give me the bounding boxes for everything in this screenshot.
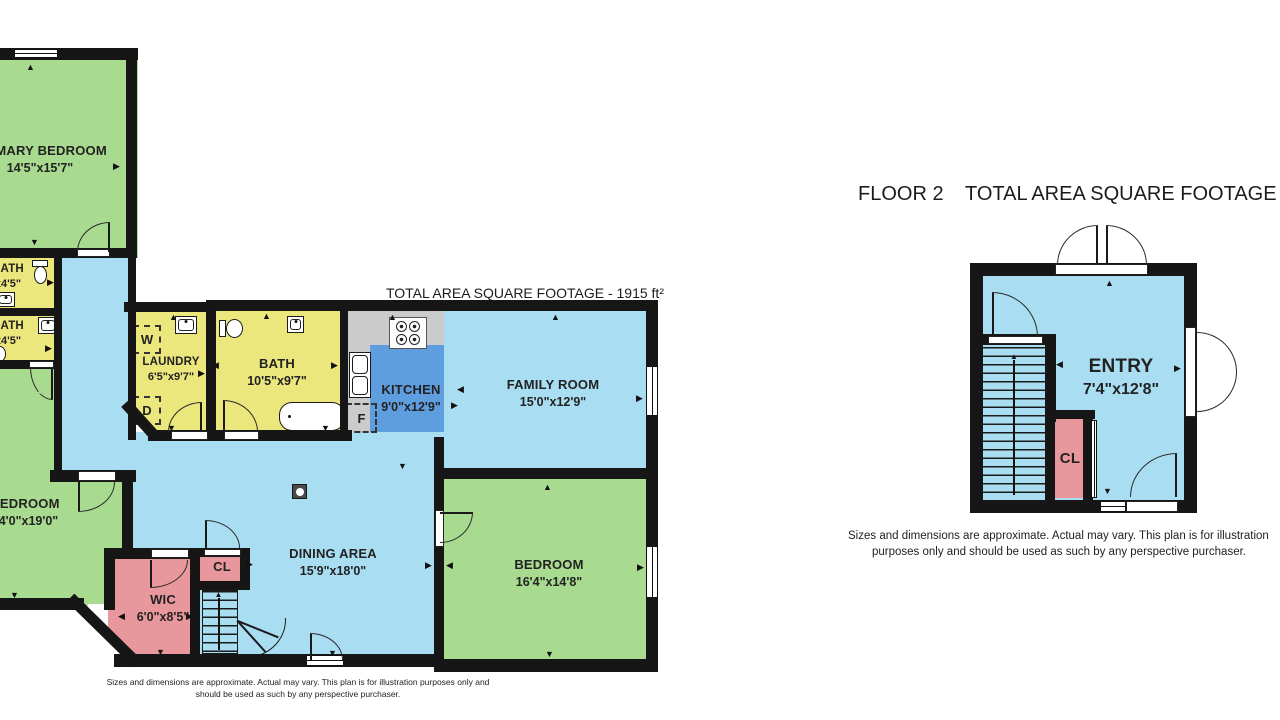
toilet-tank [219,320,226,337]
hallway-floor [58,250,128,476]
window [646,366,658,416]
dim-arrow-icon: ▼ [321,424,330,433]
dim-arrow-icon: ▶ [636,394,643,403]
dim-arrow-icon: ▲ [262,312,271,321]
dim-arrow-icon: ◀ [457,385,464,394]
wic-label: WIC 6'0"x8'5" [118,592,208,625]
washer-label: W [141,332,153,347]
bath-upper-label: BATH x4'5" [0,262,44,291]
dim-arrow-icon: ◀ [212,361,219,370]
bath-lower-label: BATH x4'5" [0,319,44,348]
dim-arrow-icon: ▼ [1103,487,1112,496]
disclaimer-line: Sizes and dimensions are approximate. Ac… [848,528,1280,544]
bathroom-sink [0,292,15,307]
room-name: DINING AREA [258,546,408,563]
dim-arrow-icon: ▼ [398,462,407,471]
wall [0,248,137,258]
burner-icon [409,334,420,345]
bedroom-right-label: BEDROOM 16'4"x14'8" [474,557,624,590]
primary-bedroom-label: PRIMARY BEDROOM 14'5"x15'7" [0,143,160,176]
stairs-up-arrow-icon: ▲ [215,591,223,599]
dim-arrow-icon: ▶ [246,560,253,569]
dim-arrow-icon: ◀ [1056,360,1063,369]
double-door-swing [1197,332,1237,372]
kitchen-label: KITCHEN 9'0"x12'9" [361,382,461,415]
french-door-swing [1057,225,1098,265]
stairs-up-arrow-icon: ▲ [1010,353,1018,361]
wall [196,581,250,590]
dim-arrow-icon: ▲ [169,313,178,322]
dim-arrow-icon: ▶ [45,344,52,353]
window [14,49,58,58]
floor-plan-page: { "floor1": { "area_title": "TOTAL AREA … [0,0,1280,720]
bathroom-sink [287,316,304,333]
dim-arrow-icon: ▶ [1174,364,1181,373]
bedroom-left-label: BEDROOM 14'0"x19'0" [0,496,110,529]
room-name: BATH [0,262,44,277]
room-dims: 10'5"x9'7" [217,373,337,389]
floor1-area-title: TOTAL AREA SQUARE FOOTAGE - 1915 ft² [330,285,720,301]
wall [124,302,216,312]
dim-arrow-icon: ▼ [167,424,176,433]
bathtub [279,402,345,431]
staircase-rail [1013,360,1015,495]
room-dims: 6'0"x8'5" [118,609,208,625]
disclaimer-line: Sizes and dimensions are approximate. Ac… [95,676,501,688]
door-threshold [1126,501,1178,512]
door-threshold [78,471,116,481]
floor1-disclaimer: Sizes and dimensions are approximate. Ac… [95,676,501,701]
washer-box: W [133,325,161,354]
closet-label: CL [200,559,244,576]
room-dims: 7'4"x12'8" [1046,380,1196,401]
room-name: BEDROOM [474,557,624,574]
dim-arrow-icon: ▼ [328,649,337,658]
disclaimer-line: should be used as such by any perspectiv… [95,688,501,700]
room-dims: x4'5" [0,277,44,291]
dim-arrow-icon: ▶ [47,278,54,287]
dim-arrow-icon: ▲ [543,483,552,492]
room-name: CL [1053,449,1087,469]
window [646,546,658,598]
closet2-label: CL [1053,449,1087,469]
staircase-rail [218,598,220,650]
room-name: KITCHEN [361,382,461,399]
burner-icon [409,321,420,332]
dim-arrow-icon: ▶ [451,401,458,410]
room-dims: 15'9"x18'0" [258,563,408,579]
dim-arrow-icon: ▶ [637,563,644,572]
door-threshold [988,336,1043,344]
floor2-title: FLOOR 2 [858,183,944,206]
dining-area-label: DINING AREA 15'9"x18'0" [258,546,408,579]
room-name: BATH [217,356,337,373]
room-name: FAMILY ROOM [478,377,628,394]
room-dims: 14'5"x15'7" [0,160,160,176]
dim-arrow-icon: ▼ [30,238,39,247]
door-threshold [224,431,259,440]
family-room-label: FAMILY ROOM 15'0"x12'9" [478,377,628,410]
laundry-sink [175,316,197,334]
room-dims: 9'0"x12'9" [361,399,461,415]
room-name: WIC [118,592,208,609]
entry-label: ENTRY 7'4"x12'8" [1046,355,1196,400]
wall [434,468,658,479]
toilet-bowl [226,319,243,338]
dim-arrow-icon: ▲ [551,313,560,322]
room-name: PRIMARY BEDROOM [0,143,160,160]
floor2-area-title: TOTAL AREA SQUARE FOOTAGE - [965,183,1280,206]
wall [206,300,658,311]
burner-icon [396,334,407,345]
disclaimer-line: purposes only and should be used as such… [872,544,1280,560]
dim-arrow-icon: ▼ [10,591,19,600]
dim-arrow-icon: ▲ [26,63,35,72]
bath-main-label: BATH 10'5"x9'7" [217,356,337,389]
dim-arrow-icon: ▲ [388,313,397,322]
floor2-disclaimer: Sizes and dimensions are approximate. Ac… [848,528,1280,560]
door-threshold [171,431,208,440]
room-dims: x4'5" [0,334,44,348]
stoop-steps [1100,501,1126,512]
door-threshold [204,549,241,556]
wall [646,300,658,672]
dim-arrow-icon: ◀ [446,561,453,570]
dim-arrow-icon: ▼ [156,648,165,657]
wall [122,476,133,558]
wall [434,659,658,672]
burner-icon [396,321,407,332]
room-name: BATH [0,319,44,334]
door-threshold [1055,264,1148,275]
double-door-swing [1197,372,1237,412]
dim-arrow-icon: ▶ [186,612,193,621]
closet-door-slab [1091,420,1097,498]
kitchen-sink-basin [352,355,368,374]
room-name: CL [200,559,244,576]
dim-arrow-icon: ▼ [545,650,554,659]
wall [104,548,115,610]
wall [0,308,62,316]
door-threshold [151,549,189,558]
room-dims: 16'4"x14'8" [474,574,624,590]
room-dims: 14'0"x19'0" [0,513,110,529]
dim-arrow-icon: ▶ [113,162,120,171]
dim-arrow-icon: ▶ [331,361,338,370]
dim-arrow-icon: ▶ [425,561,432,570]
dim-arrow-icon: ▲ [1105,279,1114,288]
ceiling-light-icon [292,484,307,499]
dim-arrow-icon: ◀ [118,612,125,621]
room-name: BEDROOM [0,496,110,513]
french-door-swing [1106,225,1147,265]
wall [340,300,348,433]
room-dims: 15'0"x12'9" [478,394,628,410]
dim-arrow-icon: ▶ [198,369,205,378]
